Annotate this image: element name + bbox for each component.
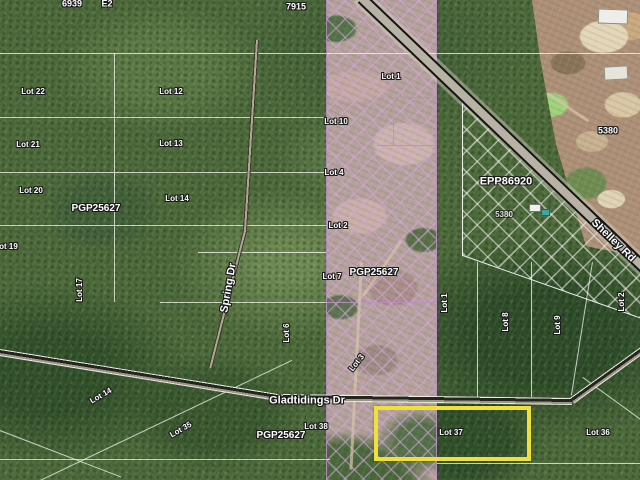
lot-label: Lot 21 xyxy=(16,141,40,149)
map-canvas[interactable]: 6939E2791553805380PGP25627PGP25627PGP256… xyxy=(0,0,640,480)
lot-label: Lot 3 xyxy=(348,353,366,373)
lot-label: Lot 1 xyxy=(381,73,400,81)
address-label: 5380 xyxy=(598,127,618,136)
lot-label: Lot 38 xyxy=(304,423,328,431)
road-label: Shelley Rd xyxy=(589,218,637,265)
lot-label: Lot 6 xyxy=(283,323,291,342)
road-label: Gladtidings Dr xyxy=(269,396,345,407)
lot-label: Lot 35 xyxy=(169,421,193,440)
address-label: 7915 xyxy=(286,3,306,12)
lot-label: Lot 2 xyxy=(618,292,626,311)
lot-label: Lot 4 xyxy=(324,169,343,177)
lot-label: Lot 19 xyxy=(0,243,18,251)
lot-label: Lot 10 xyxy=(324,118,348,126)
lot-label: Lot 20 xyxy=(19,187,43,195)
road-label: Spring Dr xyxy=(219,262,239,313)
plan-label: PGP25627 xyxy=(72,204,121,214)
lot-label: Lot 14 xyxy=(165,195,189,203)
lot-label: Lot 22 xyxy=(21,88,45,96)
lot-label: Lot 13 xyxy=(159,140,183,148)
lot-label: Lot 17 xyxy=(76,278,84,302)
plan-label: EPP86920 xyxy=(480,177,533,188)
lot-label: Lot 12 xyxy=(159,88,183,96)
map-labels-layer: 6939E2791553805380PGP25627PGP25627PGP256… xyxy=(0,0,640,480)
plan-label: PGP25627 xyxy=(257,431,306,441)
lot-label: Lot 14 xyxy=(89,387,113,406)
address-label: E2 xyxy=(101,0,112,9)
address-label: 6939 xyxy=(62,0,82,9)
lot-label: Lot 9 xyxy=(554,315,562,334)
address-label: 5380 xyxy=(495,211,513,219)
lot-label: Lot 7 xyxy=(322,273,341,281)
lot-label: Lot 36 xyxy=(586,429,610,437)
lot-label: Lot 2 xyxy=(328,222,347,230)
lot-label: Lot 8 xyxy=(502,312,510,331)
lot-label: Lot 37 xyxy=(439,429,463,437)
plan-label: PGP25627 xyxy=(350,268,399,278)
lot-label: Lot 1 xyxy=(441,293,449,312)
